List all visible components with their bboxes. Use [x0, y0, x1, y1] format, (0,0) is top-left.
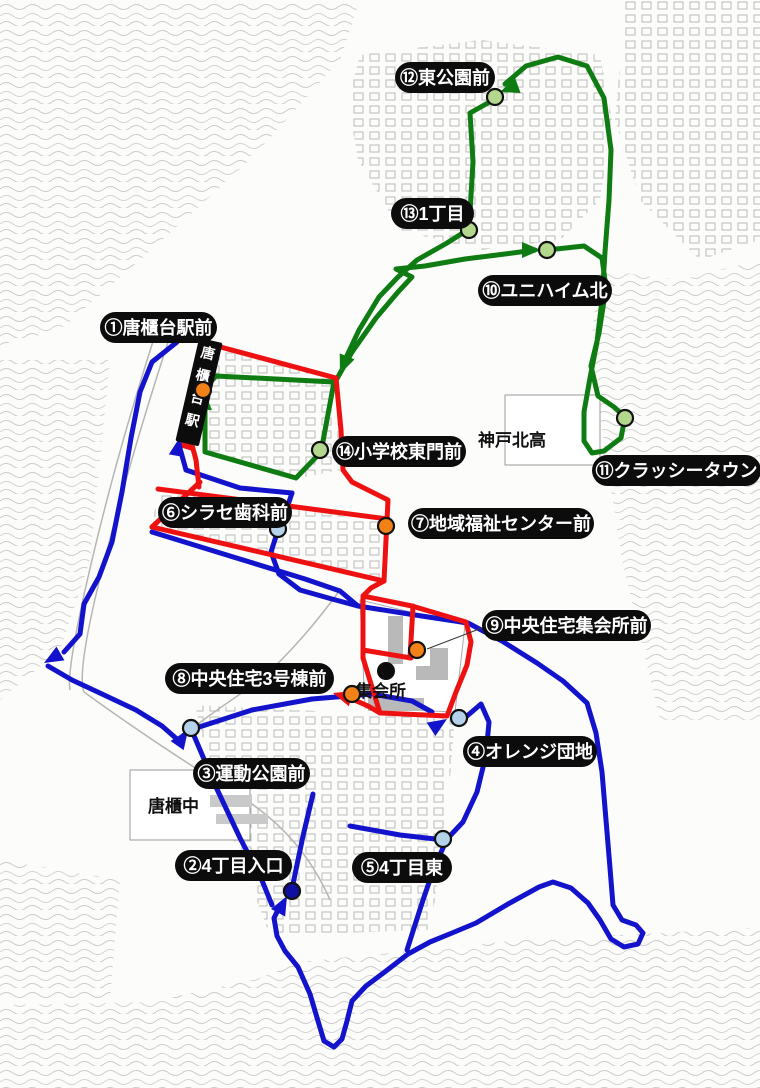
place-label-meeting-hall: 集会所 — [354, 681, 406, 701]
stop-label: ①唐櫃台駅前 — [105, 317, 213, 338]
stop-marker — [312, 442, 328, 458]
stop-marker — [195, 382, 211, 398]
route-map-svg: 唐櫃台駅 神戸北高唐櫃中集会所①唐櫃台駅前②4丁目入口③運動公園前④オレンジ団地… — [0, 0, 760, 1088]
stop-marker — [183, 720, 199, 736]
stop-marker — [344, 686, 360, 702]
stop-label: ⑬1丁目 — [400, 203, 464, 224]
hill-area-southwest — [0, 860, 120, 1000]
stop-marker — [451, 710, 467, 726]
stop-label: ③運動公園前 — [198, 763, 306, 784]
stop-label: ⑩ユニハイム北 — [482, 280, 607, 301]
stop-label: ④オレンジ団地 — [467, 741, 593, 762]
meeting-hall-dot — [377, 662, 395, 680]
route-map: 唐櫃台駅 神戸北高唐櫃中集会所①唐櫃台駅前②4丁目入口③運動公園前④オレンジ団地… — [0, 0, 760, 1088]
building — [210, 795, 252, 807]
stop-marker — [487, 89, 503, 105]
stop-marker — [409, 642, 425, 658]
stop-label: ⑧中央住宅3号棟前 — [172, 668, 326, 689]
stop-marker — [378, 518, 394, 534]
stop-marker — [284, 883, 300, 899]
stop-label: ⑥シラセ歯科前 — [162, 502, 288, 523]
stop-label: ⑪クラッシータウン — [596, 460, 758, 481]
stop-label: ⑭小学校東門前 — [336, 441, 462, 462]
stop-marker — [617, 410, 633, 426]
place-label-junior-high: 唐櫃中 — [148, 796, 199, 816]
stop-label: ⑦地域福祉センター前 — [411, 513, 591, 534]
place-label-high-school: 神戸北高 — [478, 430, 546, 450]
stop-label: ⑤4丁目東 — [361, 857, 443, 878]
stop-label: ⑫東公園前 — [400, 67, 490, 88]
building — [216, 814, 268, 824]
stop-marker — [435, 831, 451, 847]
stop-label: ②4丁目入口 — [183, 855, 283, 876]
stop-marker — [539, 242, 555, 258]
stop-label: ⑨中央住宅集会所前 — [486, 615, 648, 636]
